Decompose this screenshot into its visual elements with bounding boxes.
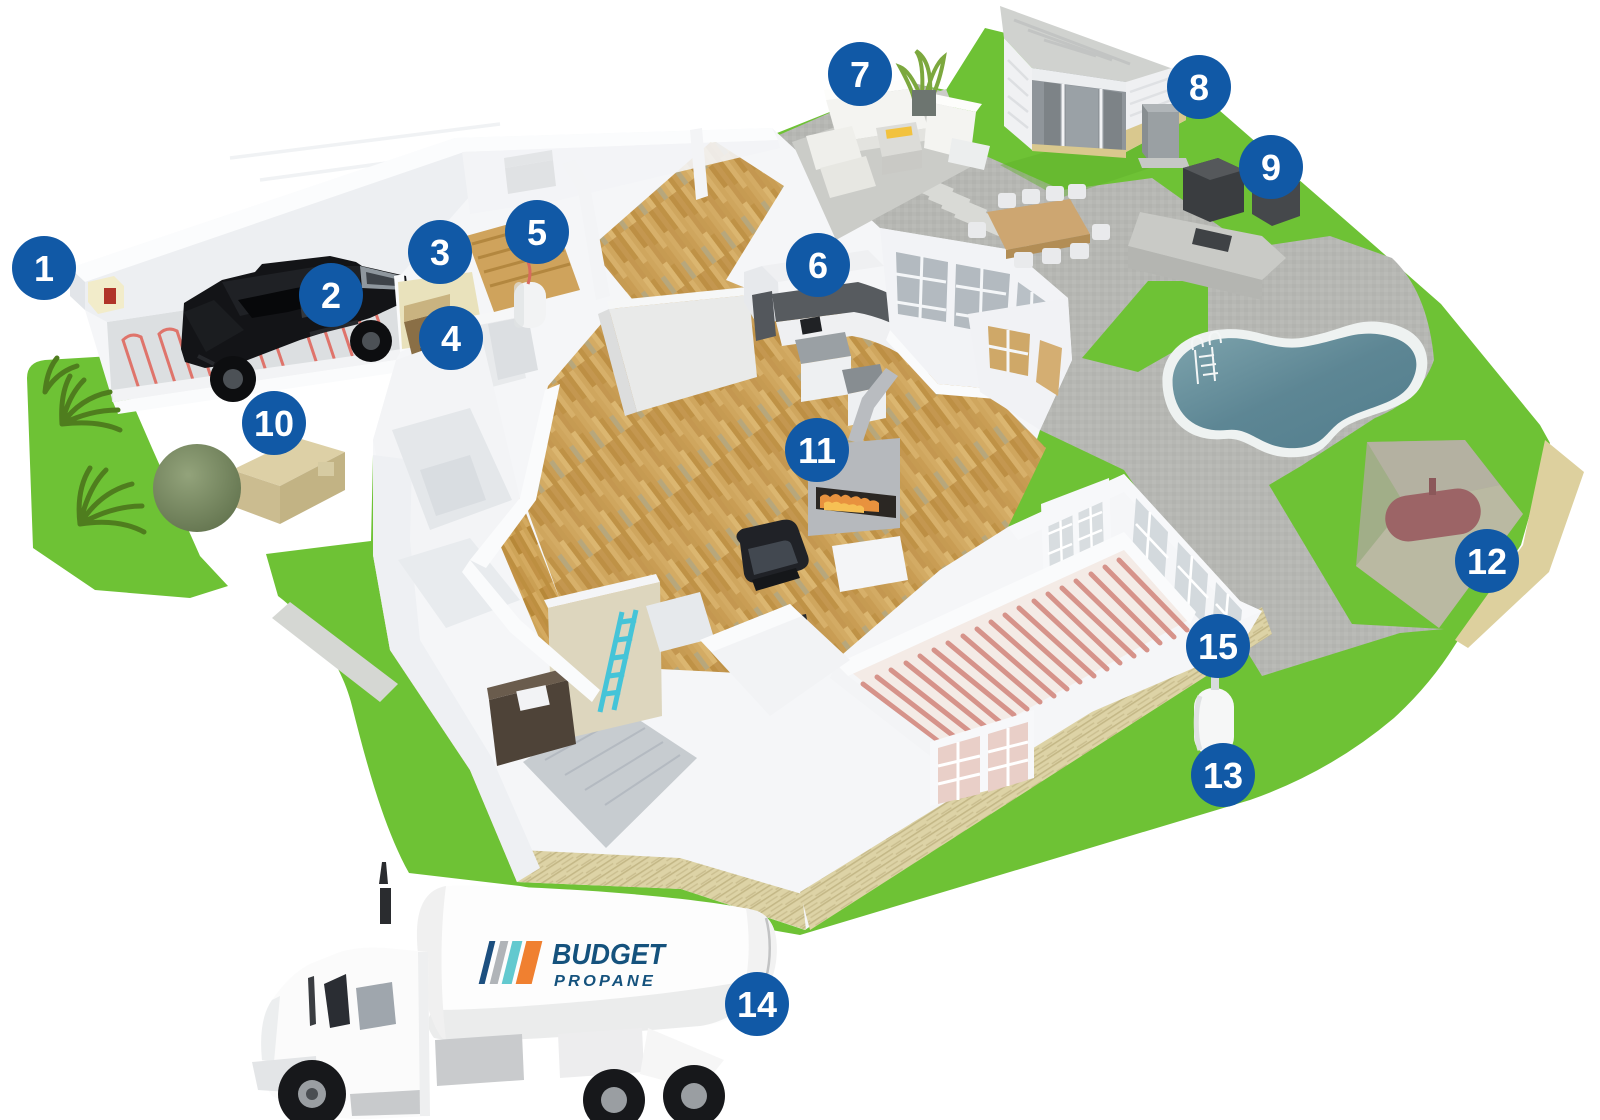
svg-text:15: 15 <box>1198 626 1238 667</box>
svg-text:BUDGET: BUDGET <box>552 939 667 971</box>
svg-text:8: 8 <box>1189 67 1209 108</box>
svg-text:4: 4 <box>441 318 461 359</box>
svg-text:10: 10 <box>254 403 294 444</box>
svg-text:13: 13 <box>1203 755 1243 796</box>
svg-text:7: 7 <box>850 54 870 95</box>
svg-text:12: 12 <box>1467 541 1507 582</box>
svg-text:3: 3 <box>430 232 450 273</box>
svg-text:5: 5 <box>527 212 547 253</box>
svg-text:14: 14 <box>737 984 777 1025</box>
svg-text:9: 9 <box>1261 147 1281 188</box>
svg-text:PROPANE: PROPANE <box>554 973 656 990</box>
svg-text:1: 1 <box>34 248 54 289</box>
svg-text:6: 6 <box>808 245 828 286</box>
svg-text:11: 11 <box>798 430 836 471</box>
svg-text:2: 2 <box>321 275 341 316</box>
